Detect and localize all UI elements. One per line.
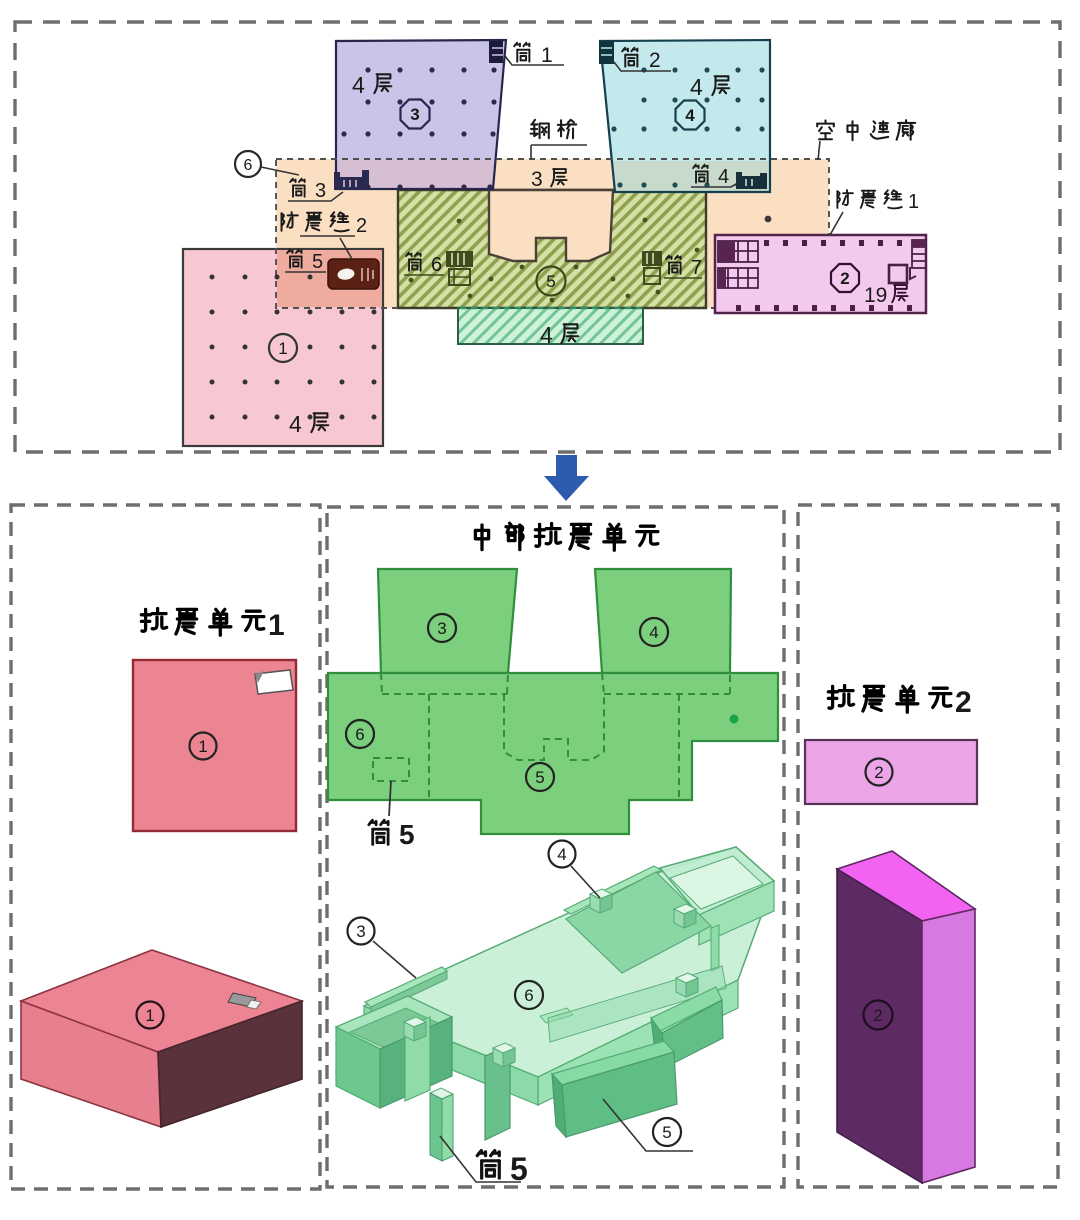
svg-text:6: 6 bbox=[524, 986, 533, 1005]
svg-text:3: 3 bbox=[356, 922, 365, 941]
svg-text:1: 1 bbox=[145, 1006, 154, 1025]
svg-text:19: 19 bbox=[864, 284, 887, 307]
svg-text:4: 4 bbox=[718, 166, 729, 188]
svg-text:6: 6 bbox=[355, 725, 364, 744]
svg-text:2: 2 bbox=[955, 686, 972, 719]
svg-text:5: 5 bbox=[535, 768, 544, 787]
svg-text:7: 7 bbox=[691, 257, 702, 279]
svg-text:5: 5 bbox=[312, 251, 323, 273]
svg-text:4: 4 bbox=[557, 845, 566, 864]
svg-text:6: 6 bbox=[431, 254, 442, 276]
svg-text:5: 5 bbox=[662, 1123, 671, 1142]
svg-text:1: 1 bbox=[198, 737, 207, 756]
svg-text:2: 2 bbox=[873, 1006, 882, 1025]
svg-text:1: 1 bbox=[541, 44, 553, 67]
svg-text:3: 3 bbox=[437, 619, 446, 638]
svg-text:3: 3 bbox=[531, 168, 543, 191]
svg-text:4: 4 bbox=[540, 322, 553, 348]
svg-text:1: 1 bbox=[278, 339, 287, 358]
svg-text:4: 4 bbox=[289, 411, 302, 437]
svg-text:4: 4 bbox=[649, 623, 658, 642]
svg-text:3: 3 bbox=[315, 180, 326, 202]
svg-text:2: 2 bbox=[649, 49, 661, 72]
svg-text:4: 4 bbox=[352, 72, 365, 98]
svg-text:2: 2 bbox=[840, 269, 849, 288]
svg-text:2: 2 bbox=[874, 763, 883, 782]
svg-text:5: 5 bbox=[546, 272, 555, 291]
svg-text:4: 4 bbox=[685, 106, 695, 125]
svg-text:2: 2 bbox=[356, 215, 367, 237]
svg-text:5: 5 bbox=[510, 1151, 528, 1187]
svg-text:1: 1 bbox=[908, 191, 919, 213]
svg-text:1: 1 bbox=[268, 609, 285, 642]
svg-text:5: 5 bbox=[399, 819, 415, 850]
svg-text:6: 6 bbox=[244, 157, 253, 174]
svg-text:4: 4 bbox=[690, 74, 703, 100]
svg-text:3: 3 bbox=[410, 105, 419, 124]
